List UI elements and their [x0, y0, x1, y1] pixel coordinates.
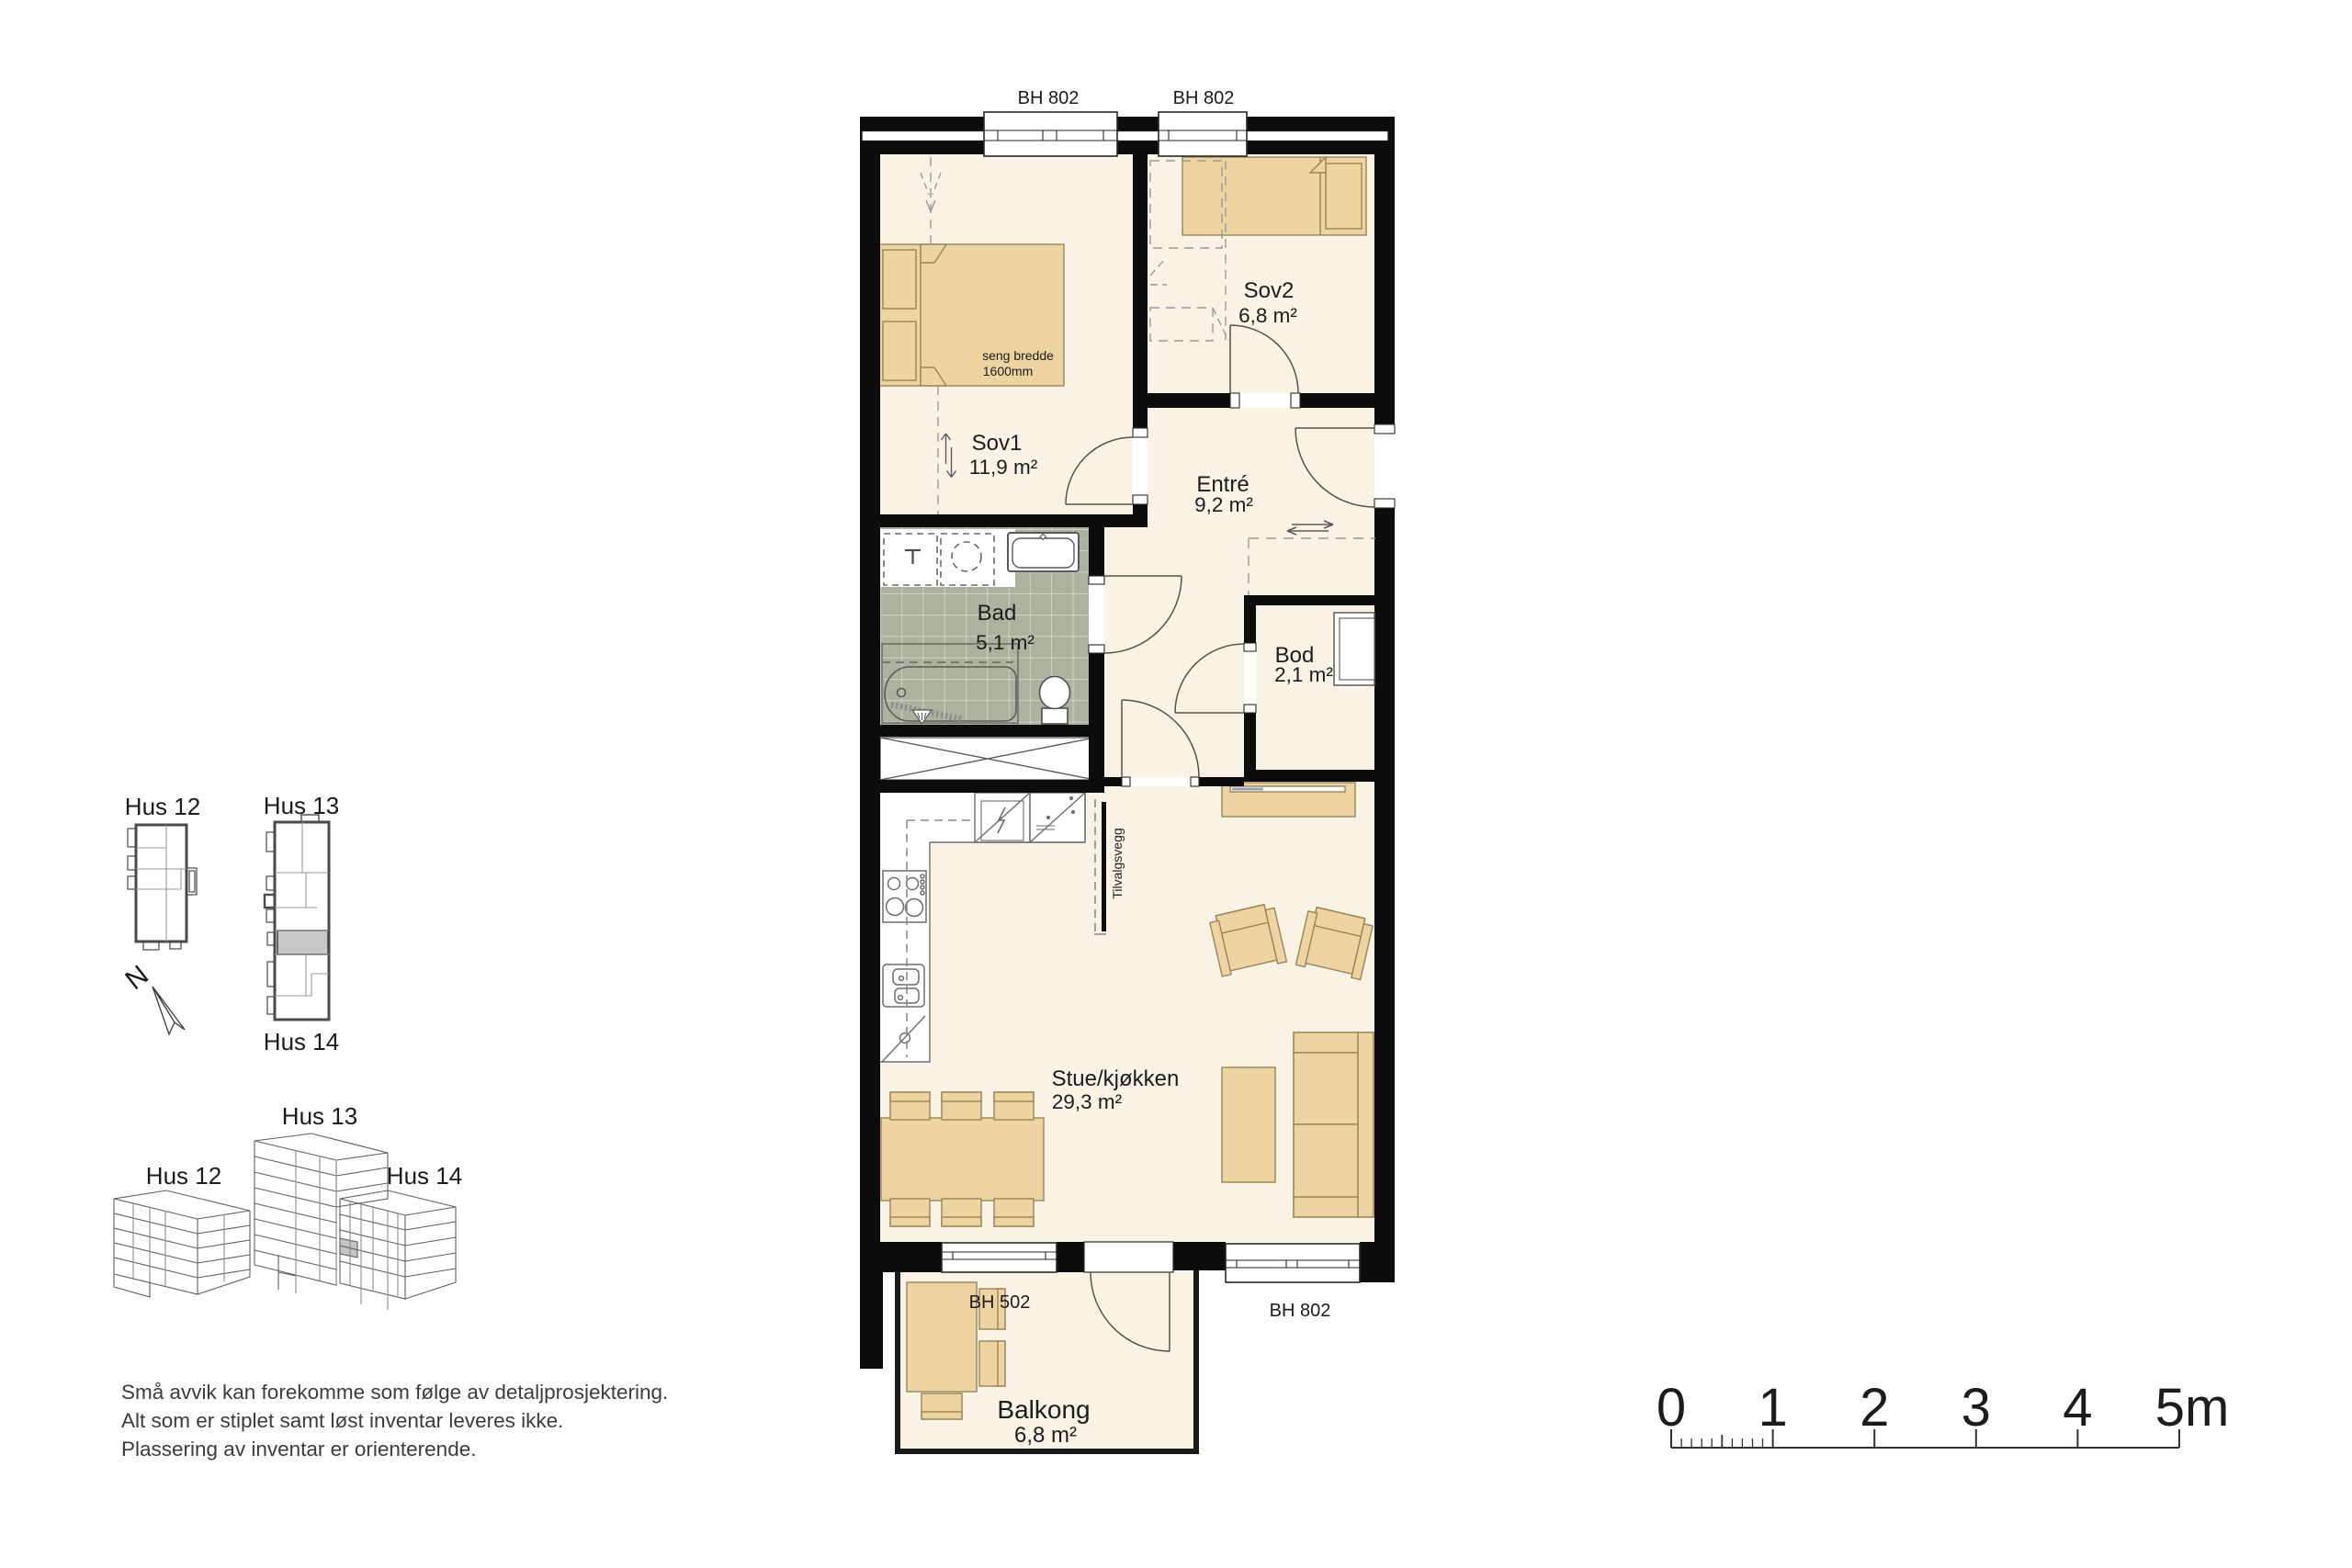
- svg-text:Tilvalgsvegg: Tilvalgsvegg: [1110, 828, 1125, 898]
- svg-text:3: 3: [1962, 1378, 1991, 1438]
- svg-text:N: N: [119, 960, 153, 996]
- svg-text:Bad: Bad: [978, 601, 1017, 626]
- svg-text:9,2 m²: 9,2 m²: [1194, 493, 1253, 516]
- svg-text:Hus 12: Hus 12: [146, 1162, 221, 1190]
- svg-text:Alt som er stiplet samt løst i: Alt som er stiplet samt løst inventar le…: [121, 1409, 563, 1432]
- svg-text:BH 802: BH 802: [1270, 1301, 1331, 1321]
- svg-text:6,8 m²: 6,8 m²: [1238, 304, 1297, 327]
- svg-text:Små avvik kan forekomme som fø: Små avvik kan forekomme som følge av det…: [121, 1381, 668, 1404]
- svg-text:Hus 14: Hus 14: [387, 1162, 462, 1190]
- svg-text:BH 502: BH 502: [969, 1292, 1031, 1313]
- svg-text:11,9 m²: 11,9 m²: [969, 456, 1038, 479]
- svg-text:1: 1: [1758, 1378, 1787, 1438]
- svg-text:BH 802: BH 802: [1018, 88, 1080, 108]
- svg-text:Sov1: Sov1: [972, 431, 1023, 456]
- svg-text:2,1 m²: 2,1 m²: [1274, 663, 1333, 686]
- svg-text:29,3 m²: 29,3 m²: [1052, 1090, 1123, 1113]
- svg-text:Balkong: Balkong: [997, 1395, 1090, 1424]
- svg-text:Hus 13: Hus 13: [282, 1102, 357, 1130]
- svg-text:0: 0: [1657, 1378, 1686, 1438]
- svg-text:5,1 m²: 5,1 m²: [976, 631, 1035, 654]
- svg-text:6,8 m²: 6,8 m²: [1014, 1423, 1077, 1448]
- svg-text:2: 2: [1860, 1378, 1889, 1438]
- svg-text:Hus 14: Hus 14: [264, 1028, 339, 1055]
- svg-text:5m: 5m: [2155, 1378, 2230, 1438]
- svg-text:Stue/kjøkken: Stue/kjøkken: [1052, 1066, 1180, 1091]
- svg-text:Plassering av inventar er orie: Plassering av inventar er orienterende.: [121, 1438, 476, 1461]
- svg-text:4: 4: [2063, 1378, 2092, 1438]
- svg-text:1600mm: 1600mm: [983, 364, 1033, 378]
- svg-text:Sov2: Sov2: [1244, 278, 1295, 303]
- svg-text:Hus 12: Hus 12: [125, 793, 200, 820]
- svg-text:BH 802: BH 802: [1173, 88, 1235, 108]
- svg-text:seng bredde: seng bredde: [982, 348, 1054, 363]
